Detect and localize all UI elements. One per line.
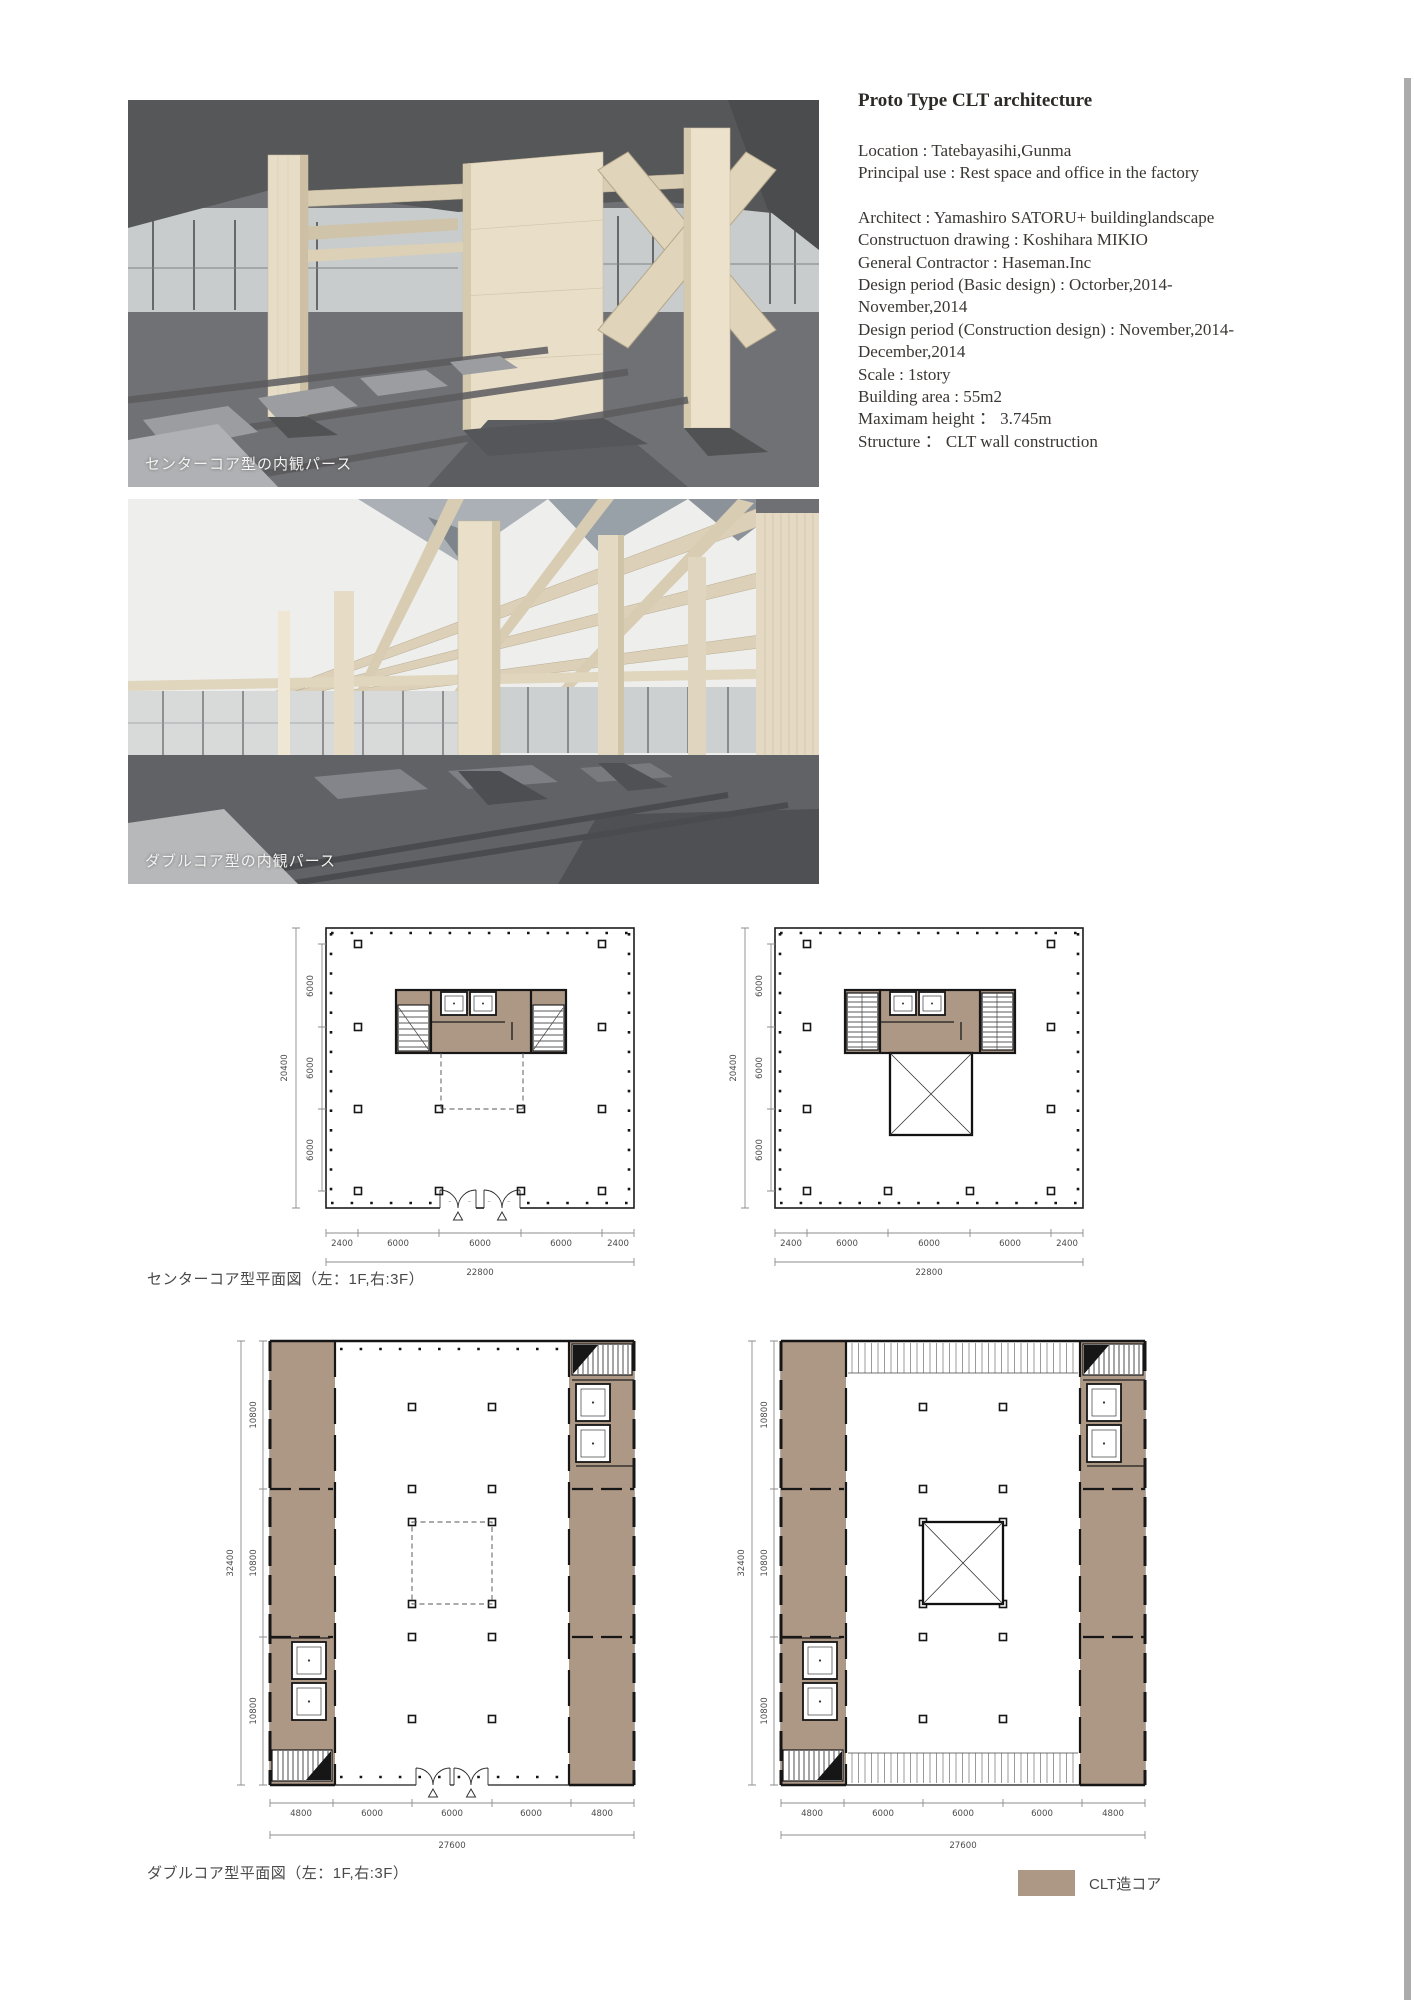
render-caption-double-core: ダブルコア型の内観パース	[145, 850, 336, 871]
page-edge-strip	[1404, 78, 1411, 2000]
void-x-marker	[890, 1053, 972, 1135]
info-line-design-period-construction-2: December,2014	[858, 341, 1303, 363]
entrance-doors	[416, 1768, 488, 1797]
entrance-marker	[429, 1789, 438, 1797]
caption-center-core-plans: センターコア型平面図（左：1F,右:3F）	[147, 1268, 424, 1289]
info-line-design-period-construction: Design period (Construction design) : No…	[858, 319, 1303, 341]
void-above-outline	[412, 1522, 492, 1604]
entrance-marker	[498, 1212, 507, 1220]
info-line-general-contractor: General Contractor : Haseman.Inc	[858, 252, 1303, 274]
render-center-core-image	[128, 100, 819, 487]
entrance-marker	[454, 1212, 463, 1220]
info-line-max-height: Maximam height ： 3.745m	[858, 408, 1303, 430]
caption-double-core-plans: ダブルコア型平面図（左：1F,右:3F）	[147, 1862, 408, 1883]
floor-plans-center-core: 20400 6000 6000 6000 2400 6000 6000 6000…	[240, 920, 1120, 1300]
void-above-outline	[441, 1053, 523, 1109]
clt-legend-swatch	[1018, 1870, 1075, 1896]
info-line-location: Location : Tatebayasihi,Gunma	[858, 140, 1303, 162]
clt-core-legend: CLT造コア	[1018, 1870, 1161, 1896]
info-line-building-area: Building area : 55m2	[858, 386, 1303, 408]
project-info: Proto Type CLT architecture Location : T…	[858, 90, 1303, 453]
void-x-marker	[923, 1522, 1003, 1604]
plan-double-core-1f	[226, 1341, 634, 1851]
info-line-architect: Architect : Yamashiro SATORU+ buildingla…	[858, 207, 1303, 229]
presentation-board: センターコア型の内観パース	[0, 0, 1414, 2000]
info-line-principal-use: Principal use : Rest space and office in…	[858, 162, 1303, 184]
project-title: Proto Type CLT architecture	[858, 90, 1303, 112]
render-caption-center-core: センターコア型の内観パース	[145, 453, 352, 474]
info-line-design-period-basic-2: November,2014	[858, 296, 1303, 318]
entrance-doors	[440, 1190, 520, 1220]
info-line-design-period-basic: Design period (Basic design) : Octorber,…	[858, 274, 1303, 296]
info-line-structure: Structure ： CLT wall construction	[858, 431, 1303, 453]
render-double-core-image	[128, 499, 819, 884]
entrance-marker	[467, 1789, 476, 1797]
info-line-scale: Scale : 1story	[858, 364, 1303, 386]
plan-double-core-3f	[737, 1341, 1145, 1851]
info-line-construction-drawing: Constructuon drawing : Koshihara MIKIO	[858, 229, 1303, 251]
plan-center-core-3f	[729, 928, 1083, 1278]
floor-plans-double-core: 32400 10800 10800 10800 4800 6000 6000 6…	[200, 1330, 1160, 1860]
plan-center-core-1f	[280, 928, 634, 1278]
render-center-core-perspective: センターコア型の内観パース	[128, 100, 819, 487]
clt-legend-label: CLT造コア	[1089, 1873, 1161, 1894]
render-double-core-perspective: ダブルコア型の内観パース	[128, 499, 819, 884]
